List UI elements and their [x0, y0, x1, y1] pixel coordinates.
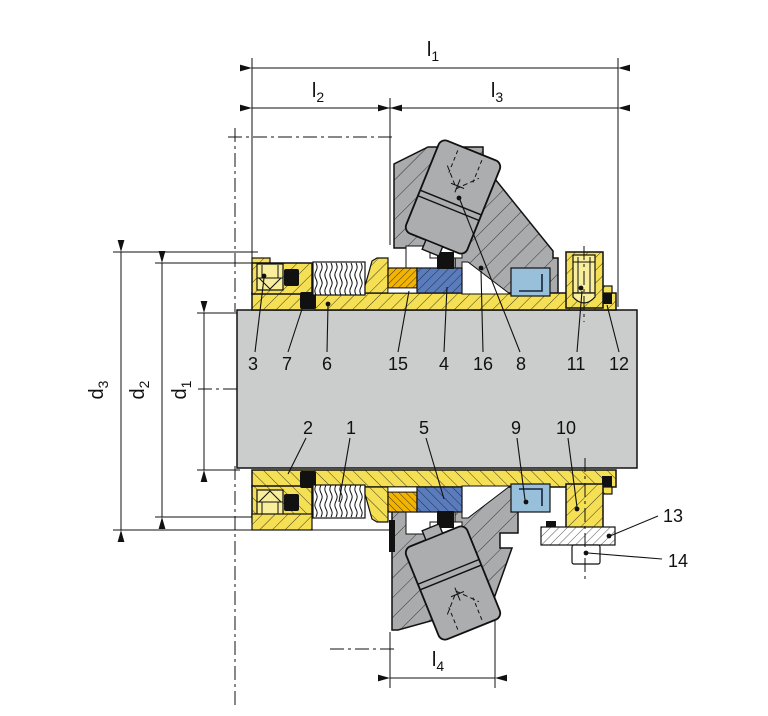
part-label-16: 16 [473, 354, 493, 374]
dim-label-l2: l2 [312, 80, 324, 105]
part-label-1: 1 [346, 418, 356, 438]
dim-label-l3: l3 [491, 80, 503, 105]
part-label-9: 9 [511, 418, 521, 438]
dim-label-d3: d3 [86, 380, 111, 399]
part-label-2: 2 [303, 418, 313, 438]
part-label-5: 5 [419, 418, 429, 438]
part-label-3: 3 [248, 354, 258, 374]
dim-label-l1: l1 [427, 39, 439, 64]
clamp-extension-lower [252, 514, 312, 530]
ring-light-blue-lower [511, 484, 550, 512]
shaft [237, 310, 637, 468]
technical-drawing-page: 3 7 6 15 4 16 8 11 12 2 1 5 9 10 13 14 l… [0, 0, 768, 716]
dim-label-l4: l4 [432, 649, 444, 674]
part-label-7: 7 [282, 354, 292, 374]
part-label-6: 6 [322, 354, 332, 374]
part-label-4: 4 [439, 354, 449, 374]
part-label-11: 11 [567, 354, 586, 374]
dim-label-d1: d1 [169, 380, 194, 399]
part-label-12: 12 [609, 354, 629, 374]
part-label-13: 13 [663, 506, 683, 526]
dim-label-d2: d2 [127, 380, 152, 399]
gasket-lower [389, 520, 395, 552]
part-label-10: 10 [556, 418, 576, 438]
part-label-15: 15 [388, 354, 408, 374]
part-label-8: 8 [516, 354, 526, 374]
mechanical-seal-diagram: 3 7 6 15 4 16 8 11 12 2 1 5 9 10 13 14 l… [0, 0, 768, 716]
part-label-14: 14 [668, 551, 688, 571]
ring-light-blue-upper [511, 268, 550, 296]
